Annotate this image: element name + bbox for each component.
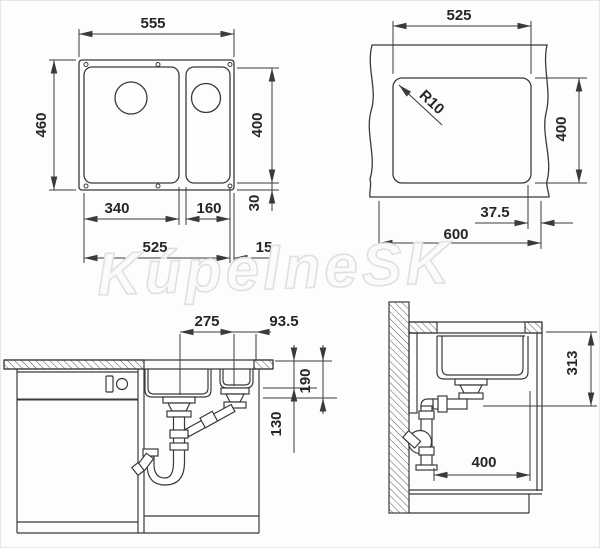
countertop-section-right [254, 360, 273, 369]
dim-overall-width: 555 [140, 15, 165, 32]
dim-cabinet-width: 600 [443, 226, 468, 243]
wall-section [389, 302, 409, 513]
bowl-section-side [437, 336, 528, 379]
top-view-drawing [79, 60, 234, 190]
sink-installation-drawing: 555 460 400 30 340 160 525 15 525 R10 40… [0, 0, 600, 548]
dim-main-bowl-depth: 190 [297, 368, 314, 393]
dim-install-depth: 313 [564, 350, 581, 375]
drain-and-trap-assembly [132, 388, 249, 485]
top-view-labels: 555 460 400 30 340 160 525 15 [33, 15, 272, 256]
dim-small-bowl-width: 160 [196, 200, 221, 217]
side-view-drawing [389, 302, 542, 513]
dim-drain-to-edge: 93.5 [269, 313, 298, 330]
cutout-rectangle [393, 78, 531, 183]
dim-cutout-width: 525 [446, 7, 471, 24]
dim-cutout-depth: 400 [553, 116, 570, 141]
dim-edge-gap: 15 [256, 239, 273, 256]
dim-min-depth: 400 [471, 454, 496, 471]
small-bowl [186, 67, 230, 183]
small-drain-hole [192, 84, 221, 113]
main-bowl [84, 67, 179, 183]
control-knob [117, 379, 128, 390]
fixing-holes [84, 63, 232, 189]
dim-mount-span: 525 [142, 239, 167, 256]
control-panel-display [106, 376, 113, 392]
dim-corner-radius: R10 [416, 87, 448, 118]
main-bowl-section [145, 369, 211, 397]
dim-drain-spacing: 275 [194, 313, 219, 330]
dim-main-bowl-width: 340 [104, 200, 129, 217]
cutout-view-labels: 525 R10 400 37.5 600 [416, 7, 570, 243]
dim-rear-margin: 30 [246, 195, 263, 212]
dim-edge-clearance: 37.5 [480, 204, 509, 221]
countertop-outline [369, 45, 549, 197]
dim-inner-depth: 400 [249, 112, 266, 137]
left-cabinet [17, 369, 138, 533]
front-view-drawing [4, 360, 273, 533]
dim-small-bowl-depth: 130 [268, 411, 285, 436]
sink-outline [79, 60, 234, 190]
dim-overall-depth: 460 [33, 112, 50, 137]
technical-drawing-canvas: 555 460 400 30 340 160 525 15 525 R10 40… [1, 1, 600, 548]
cutout-view-drawing [369, 45, 549, 197]
countertop-section-front [525, 322, 542, 333]
main-drain-hole [115, 82, 147, 114]
countertop-section-back [409, 322, 437, 333]
side-view-labels: 313 400 [471, 350, 581, 471]
countertop-section-left [4, 360, 144, 369]
wall-batten [409, 333, 417, 413]
